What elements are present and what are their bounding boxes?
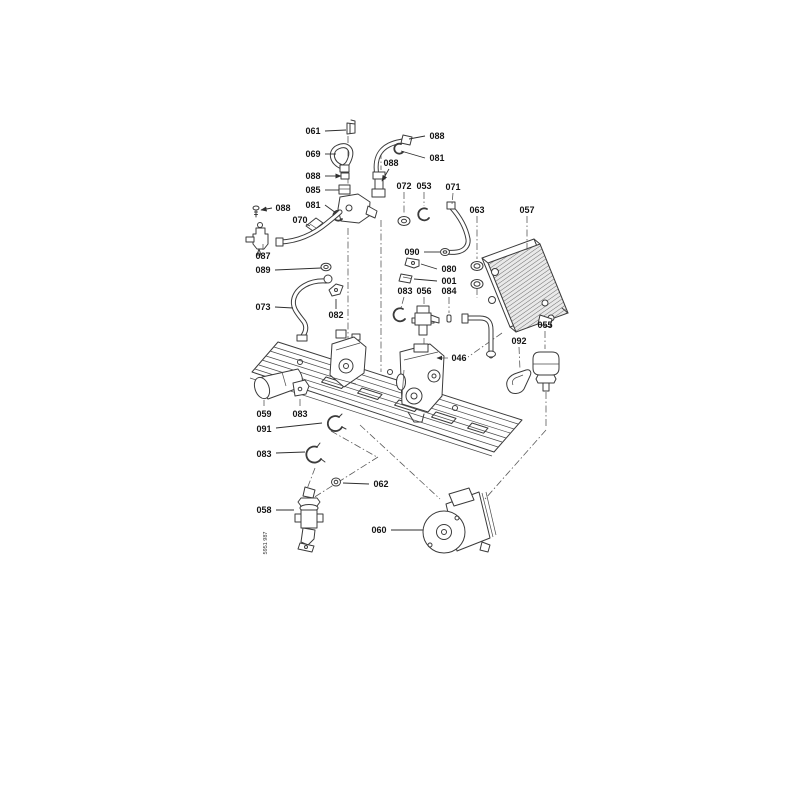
leader-line-080-20 <box>421 264 437 269</box>
part-label-081-3: 081 <box>429 153 444 163</box>
part-label-088-13: 088 <box>275 203 290 213</box>
bracket-080-part <box>405 258 419 268</box>
fitting-085-part <box>339 185 350 194</box>
part-label-069-2: 069 <box>305 149 320 159</box>
part-label-085-6: 085 <box>305 185 320 195</box>
part-label-070-14: 070 <box>292 215 307 225</box>
washers-063-part <box>471 262 483 289</box>
leader-line-081-3 <box>401 151 425 158</box>
leader-line-081-7 <box>325 205 336 213</box>
part-label-092-26: 092 <box>511 336 526 346</box>
inlet-pipe-070-illustration <box>276 212 340 246</box>
part-label-082-18: 082 <box>328 310 343 320</box>
flow-sensor-055-illustration <box>533 352 559 391</box>
part-label-055-27: 055 <box>537 320 552 330</box>
clip-001-part <box>399 274 412 283</box>
nut-088-part <box>341 173 349 179</box>
part-label-056-23: 056 <box>416 286 431 296</box>
leader-line-001-21 <box>414 279 437 281</box>
clip-083c-part <box>306 443 325 463</box>
outlet-pipe-088-illustration <box>376 135 412 176</box>
washer-089-part <box>321 263 331 271</box>
part-label-073-17: 073 <box>255 302 270 312</box>
leader-line-091-30 <box>276 423 322 428</box>
leader-line-092-26 <box>519 347 520 370</box>
top-valve-body-illustration <box>338 194 377 223</box>
screw-088-part <box>253 206 259 217</box>
part-label-060-34: 060 <box>371 525 386 535</box>
part-label-071-10: 071 <box>445 182 460 192</box>
leader-line-061-0 <box>325 130 346 131</box>
valve-056-part <box>412 306 439 335</box>
pipe-073-illustration <box>293 275 332 341</box>
leader-line-088-13 <box>261 208 272 210</box>
part-label-081-7: 081 <box>305 200 320 210</box>
leader-line-083-22 <box>401 297 404 308</box>
adapter-stack-illustration <box>372 172 385 197</box>
part-label-088-1: 088 <box>429 131 444 141</box>
part-label-053-9: 053 <box>416 181 431 191</box>
pin-084-part <box>447 315 451 322</box>
part-label-083-22: 083 <box>397 286 412 296</box>
part-label-063-11: 063 <box>469 205 484 215</box>
grommet-062-part <box>332 478 341 486</box>
document-number: 5951 987 <box>263 532 269 555</box>
part-label-091-30: 091 <box>256 424 271 434</box>
part-label-059-28: 059 <box>256 409 271 419</box>
leader-line-062-32 <box>343 483 369 484</box>
pipe-046-illustration <box>462 314 496 357</box>
bracket-092-part <box>507 370 531 394</box>
manifold-base-plate-illustration <box>250 342 522 456</box>
part-labels-layer: 0610880690810880880850810720530710630570… <box>255 126 552 535</box>
part-label-087-15: 087 <box>255 251 270 261</box>
bracket-083b-part <box>293 380 309 396</box>
part-label-062-32: 062 <box>373 479 388 489</box>
leader-line-089-16 <box>275 268 321 270</box>
diverter-valve-058-illustration <box>295 487 323 552</box>
clamp-090-part <box>441 249 450 256</box>
pump-060-illustration <box>423 488 496 553</box>
part-label-084-24: 084 <box>441 286 456 296</box>
leader-line-073-17 <box>275 307 293 308</box>
parts-diagram-page: 5951 987 0610880690810880880850810720530… <box>0 0 800 800</box>
plate-heat-exchanger-illustration <box>482 239 568 332</box>
part-label-057-12: 057 <box>519 205 534 215</box>
part-label-088-4: 088 <box>383 158 398 168</box>
part-label-061-0: 061 <box>305 126 320 136</box>
part-label-089-16: 089 <box>255 265 270 275</box>
leader-line-083-31 <box>276 452 305 453</box>
pipe-071-illustration <box>444 202 468 252</box>
part-label-083-31: 083 <box>256 449 271 459</box>
bracket-082-part <box>329 284 343 296</box>
bypass-pipe-069-illustration <box>332 146 350 172</box>
grommet-072-part <box>398 217 410 226</box>
top-clip-part <box>347 120 355 134</box>
part-label-090-19: 090 <box>404 247 419 257</box>
clip-083a-part <box>394 308 405 321</box>
part-label-088-5: 088 <box>305 171 320 181</box>
part-label-001-21: 001 <box>441 276 456 286</box>
exploded-parts-diagram: 5951 987 0610880690810880880850810720530… <box>0 0 800 800</box>
clip-053-part <box>418 208 429 220</box>
part-label-058-33: 058 <box>256 505 271 515</box>
clip-091-part <box>328 414 346 431</box>
part-label-072-8: 072 <box>396 181 411 191</box>
part-label-083-29: 083 <box>292 409 307 419</box>
clip-081-right-part <box>394 144 403 154</box>
part-label-046-25: 046 <box>451 353 466 363</box>
part-label-080-20: 080 <box>441 264 456 274</box>
